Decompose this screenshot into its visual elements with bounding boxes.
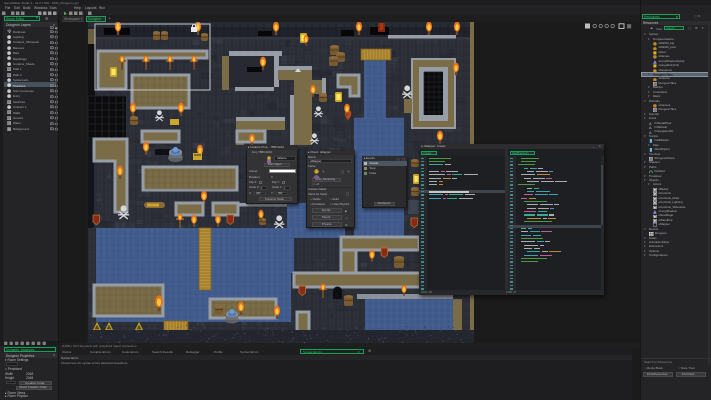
svg-text:A: A — [649, 126, 652, 130]
svg-text:A: A — [649, 122, 652, 126]
